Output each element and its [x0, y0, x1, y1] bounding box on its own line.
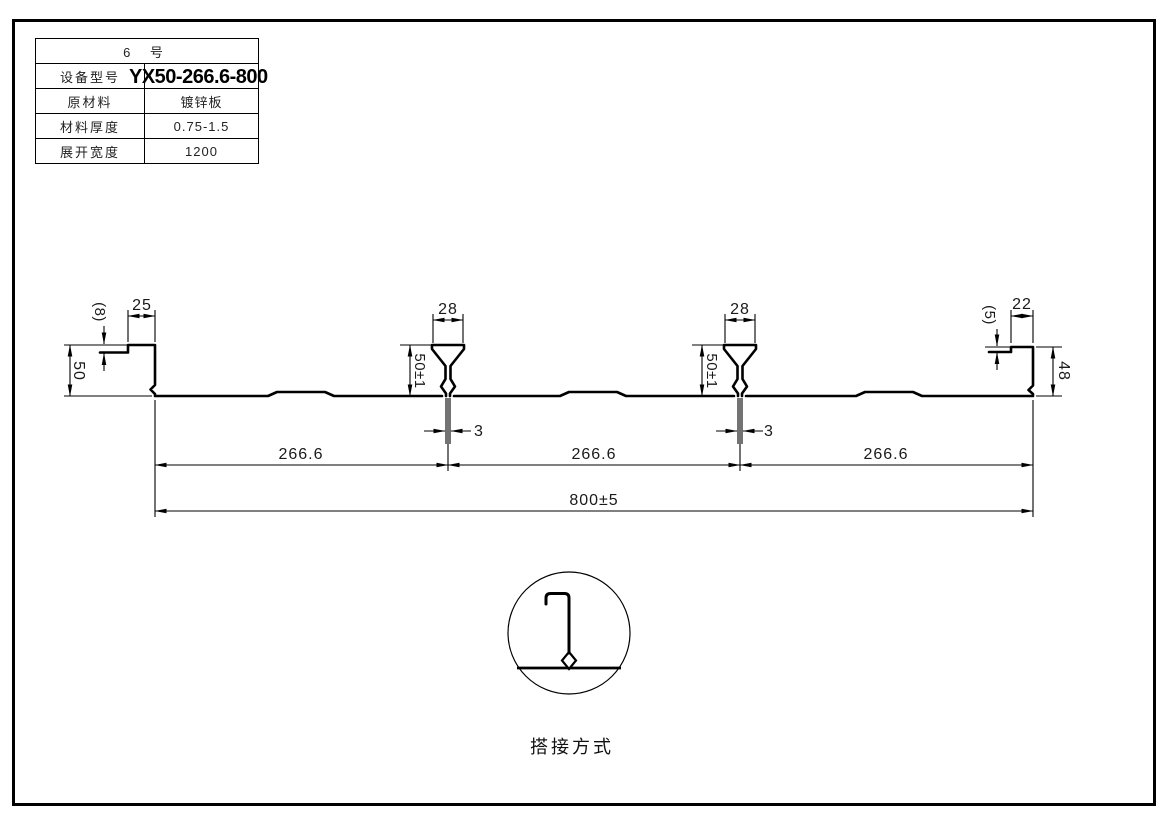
dim-text-pitch-2: 266.6 [571, 446, 616, 463]
lap-joint-detail: 搭接方式 [508, 572, 630, 757]
dim-text-rib2-slot: 3 [764, 423, 774, 440]
dim-text-rib2-height: 50±1 [703, 353, 720, 388]
dim-text-left-flange: 25 [132, 297, 152, 314]
dimension-texts: (8) 25 50 28 50±1 3 28 50±1 3 (5) 22 48 … [70, 296, 1072, 509]
dim-text-pitch-1: 266.6 [278, 446, 323, 463]
profile-left-section [100, 345, 442, 396]
dimension-lines [64, 310, 1062, 517]
detail-hook-profile [546, 594, 569, 654]
dim-text-rib1-height: 50±1 [411, 353, 428, 388]
dim-text-rib1-width: 28 [438, 301, 458, 318]
dim-text-right-height: 48 [1055, 361, 1072, 381]
sheet-profile [100, 345, 1033, 396]
dim-text-rib1-slot: 3 [474, 423, 484, 440]
rib-1 [432, 345, 464, 396]
dim-text-right-lip: (5) [981, 305, 998, 325]
profile-mid-section [454, 392, 734, 396]
detail-caption: 搭接方式 [530, 737, 614, 757]
dim-text-pitch-3: 266.6 [863, 446, 908, 463]
profile-right-section [746, 347, 1033, 396]
detail-seam-diamond [562, 652, 576, 669]
rib-2 [724, 345, 756, 396]
dim-text-rib2-width: 28 [730, 301, 750, 318]
drawing-sheet: 6 号 设备型号 YX50-266.6-800 原材料 镀锌板 材料厚度 0.7… [0, 0, 1169, 827]
profile-drawing: (8) 25 50 28 50±1 3 28 50±1 3 (5) 22 48 … [0, 0, 1169, 827]
dim-text-left-height: 50 [70, 361, 87, 381]
dim-text-right-flange: 22 [1012, 296, 1032, 313]
dim-text-overall-width: 800±5 [569, 492, 618, 509]
dim-text-left-lip: (8) [91, 302, 108, 322]
